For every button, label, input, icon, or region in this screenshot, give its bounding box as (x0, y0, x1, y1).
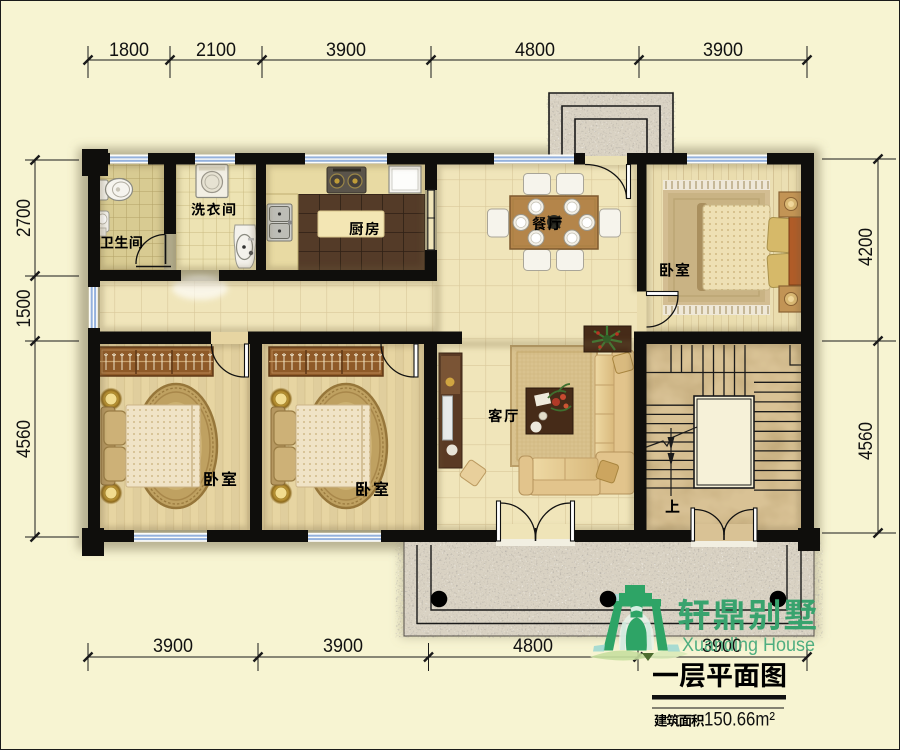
svg-text:4200: 4200 (856, 228, 877, 266)
svg-text:4560: 4560 (856, 422, 877, 460)
svg-text:Xuanding House: Xuanding House (682, 634, 815, 656)
svg-text:3900: 3900 (326, 40, 366, 61)
svg-text:3900: 3900 (153, 636, 193, 657)
svg-text:2100: 2100 (196, 40, 236, 61)
svg-text:3900: 3900 (323, 636, 363, 657)
svg-text:4800: 4800 (513, 636, 553, 657)
svg-text:1800: 1800 (109, 40, 149, 61)
svg-text:150.66m²: 150.66m² (704, 710, 775, 731)
svg-text:4560: 4560 (14, 420, 35, 458)
svg-text:1500: 1500 (14, 290, 35, 328)
svg-text:4800: 4800 (515, 40, 555, 61)
svg-text:2700: 2700 (14, 199, 35, 237)
svg-text:3900: 3900 (703, 40, 743, 61)
